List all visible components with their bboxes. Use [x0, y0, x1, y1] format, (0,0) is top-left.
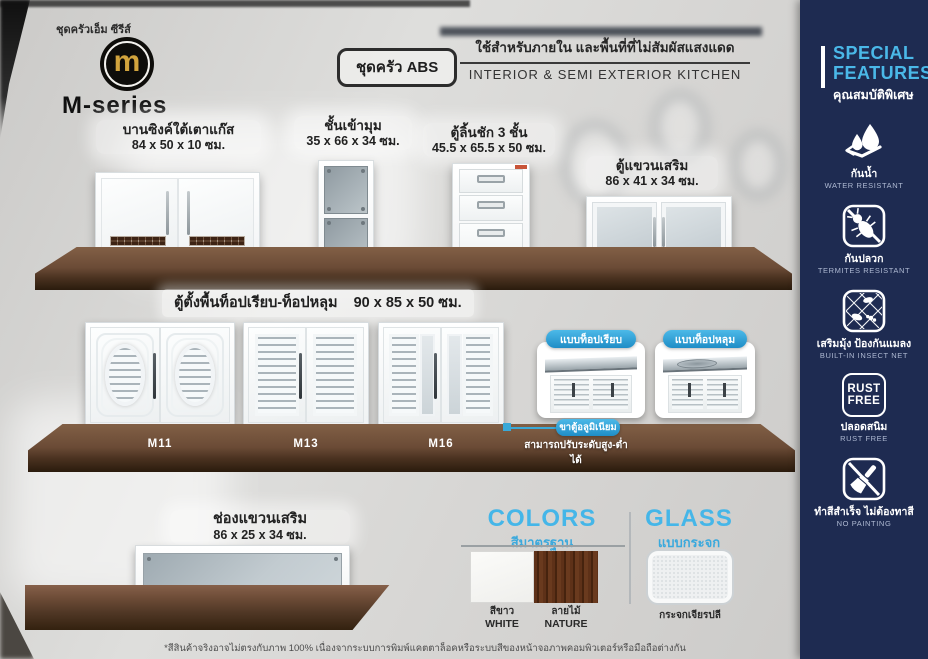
rust-free-icon: RUST FREE — [842, 373, 886, 417]
brand-name: M-series — [62, 92, 167, 120]
top-type-pill-flat: แบบท็อปเรียบ — [546, 330, 636, 348]
color-swatch-nature — [534, 551, 598, 603]
frosted-glass-strip — [447, 334, 462, 416]
sink-bowl — [677, 359, 717, 369]
title-accent-bar — [821, 46, 825, 88]
cabinet-door — [441, 327, 499, 423]
feature-no-painting: ทำสีสำเร็จ ไม่ต้องทาสี NO PAINTING — [814, 456, 914, 528]
product-label-corner-shelf: ชั้นเข้ามุม 35 x 66 x 34 ซม. — [294, 116, 412, 150]
door-handle — [299, 353, 302, 399]
feature-rust-free: RUST FREE ปลอดสนิม RUST FREE — [840, 373, 888, 443]
glass-title-en: GLASS — [630, 506, 748, 532]
top-type-pill-bowl: แบบท็อปหลุม — [663, 330, 747, 348]
sidebar-title-th: คุณสมบัติพิเศษ — [833, 85, 914, 105]
cabinet-door — [90, 327, 160, 423]
footnote: *สีสินค้าจริงอาจไม่ตรงกับภาพ 100% เนื่อง… — [40, 641, 810, 656]
oval-louver — [175, 344, 215, 406]
glass-section-title: GLASS แบบกระจก — [630, 506, 748, 553]
louver-panel — [255, 334, 299, 416]
feature-insect-net: เสริมมุ้ง ป้องกันแมลง BUILT-IN INSECT NE… — [817, 288, 911, 360]
swatch-label-nature: ลายไม้ NATURE — [534, 606, 598, 631]
louver-panel — [313, 334, 357, 416]
louver-panel — [389, 334, 419, 416]
cabinet-door — [101, 178, 178, 254]
bg-washer-shape — [730, 130, 786, 200]
catalog-page: ชุดครัวเอ็ม ซีรีส์ m M-series ชุดครัว AB… — [0, 0, 928, 659]
louver-panel — [463, 334, 493, 416]
water-resistant-icon — [841, 118, 887, 164]
heading-divider — [460, 62, 750, 64]
feature-list: กันน้ำ WATER RESISTANT — [800, 118, 928, 541]
product-name: ตู้แขวนเสริม — [590, 157, 714, 174]
m-series-logo: m — [100, 37, 154, 91]
bg-dark-band — [440, 27, 762, 36]
kitchen-set-badge: ชุดครัว ABS — [337, 48, 457, 87]
counter-shelf-top — [35, 247, 792, 290]
vent-grille — [189, 236, 245, 246]
sidebar-title: SPECIAL FEATURES — [833, 43, 928, 83]
usage-heading-th: ใช้สำหรับภายใน และพื้นที่ที่ไม่สัมผัสแสง… — [452, 36, 758, 58]
product-label-hanging-shelf: ช่องแขวนเสริม 86 x 25 x 34 ซม. — [170, 510, 350, 544]
product-label-sink-door: บานซิงค์ใต้เตาแก๊ส 84 x 50 x 10 ซม. — [96, 120, 261, 154]
no-painting-icon — [841, 456, 887, 502]
feature-termites-resistant: กันปลวก TERMITES RESISTANT — [818, 203, 910, 275]
floor-cabinet-title: ตู้ตั้งพื้นท็อปเรียบ-ท็อปหลุม90 x 85 x 5… — [162, 289, 474, 317]
product-image-floor-cabinet-m16 — [378, 322, 504, 428]
door-handle — [187, 191, 190, 235]
door-handle — [653, 217, 656, 247]
oval-louver — [105, 344, 145, 406]
colors-divider — [461, 545, 625, 547]
product-size: 90 x 85 x 50 ซม. — [354, 295, 462, 311]
leg-callout-pill: ขาตู้อลูมิเนียม — [556, 419, 620, 436]
product-label-wall-cabinet: ตู้แขวนเสริม 86 x 41 x 34 ซม. — [586, 156, 718, 190]
logo-ring: m — [104, 41, 150, 87]
countertop — [663, 357, 747, 373]
cabinet-base — [668, 375, 742, 413]
bg-top-strip — [0, 0, 470, 7]
cabinet-base — [550, 375, 632, 413]
product-name: ช่องแขวนเสริม — [174, 511, 346, 528]
drawer — [459, 169, 523, 193]
usage-heading: ใช้สำหรับภายใน และพื้นที่ที่ไม่สัมผัสแสง… — [452, 36, 758, 82]
product-image-floor-cabinet-m13 — [243, 322, 369, 428]
swatch-label-white: สีขาว WHITE — [470, 606, 534, 631]
top-type-photo-bowl — [655, 342, 755, 418]
model-label-m11: M11 — [135, 438, 185, 450]
color-swatch-white — [470, 551, 534, 603]
door-handle — [434, 353, 437, 399]
special-features-sidebar: SPECIAL FEATURES คุณสมบัติพิเศษ กันน้ำ W… — [800, 0, 928, 659]
product-name: บานซิงค์ใต้เตาแก๊ส — [100, 121, 257, 138]
countertop — [545, 356, 637, 372]
usage-heading-en: INTERIOR & SEMI EXTERIOR KITCHEN — [452, 67, 758, 82]
cabinet-door — [160, 327, 230, 423]
frosted-glass-strip — [420, 334, 435, 416]
cabinet-door — [306, 327, 364, 423]
shelf-compartment — [324, 166, 368, 214]
product-name: ตู้ลิ้นชัก 3 ชั้น — [427, 124, 551, 141]
colors-title-th: สีมาตรฐาน — [458, 532, 626, 553]
product-size: 45.5 x 65.5 x 50 ซม. — [427, 141, 551, 156]
series-label: ชุดครัวเอ็ม ซีรีส์ — [56, 20, 131, 38]
bg-left-wedge — [0, 0, 30, 140]
callout-line — [510, 427, 558, 429]
product-size: 84 x 50 x 10 ซม. — [100, 138, 257, 153]
top-type-photo-flat — [537, 342, 645, 418]
product-size: 86 x 41 x 34 ซม. — [590, 174, 714, 189]
insect-net-icon — [841, 288, 887, 334]
product-size: 86 x 25 x 34 ซม. — [174, 528, 346, 543]
product-name: ชั้นเข้ามุม — [298, 117, 408, 134]
door-handle — [166, 191, 169, 235]
counter-shelf-bottom — [25, 585, 393, 630]
door-handle — [153, 353, 156, 399]
termites-resistant-icon — [841, 203, 887, 249]
model-label-m13: M13 — [281, 438, 331, 450]
colors-title-en: COLORS — [458, 506, 626, 532]
bg-washer-shape — [650, 90, 710, 164]
glass-sample — [646, 549, 734, 605]
product-size: 35 x 66 x 34 ซม. — [298, 134, 408, 149]
product-image-sink-door-cabinet — [95, 172, 260, 260]
door-handle — [662, 217, 665, 247]
cabinet-door — [248, 327, 306, 423]
product-image-floor-cabinet-m11 — [85, 322, 235, 428]
feature-water-resistant: กันน้ำ WATER RESISTANT — [825, 118, 904, 190]
cabinet-door — [178, 178, 255, 254]
model-label-m16: M16 — [416, 438, 466, 450]
glass-sample-label: กระจกเจียรปลี — [624, 608, 756, 623]
cabinet-door — [383, 327, 441, 423]
vent-grille — [110, 236, 166, 246]
drawer — [459, 195, 523, 221]
leg-callout-note: สามารถปรับระดับสูง-ต่ำได้ — [524, 438, 628, 468]
product-label-drawer-unit: ตู้ลิ้นชัก 3 ชั้น 45.5 x 65.5 x 50 ซม. — [423, 123, 555, 157]
product-name: ตู้ตั้งพื้นท็อปเรียบ-ท็อปหลุม — [174, 295, 338, 311]
logo-letter: m — [114, 47, 141, 77]
